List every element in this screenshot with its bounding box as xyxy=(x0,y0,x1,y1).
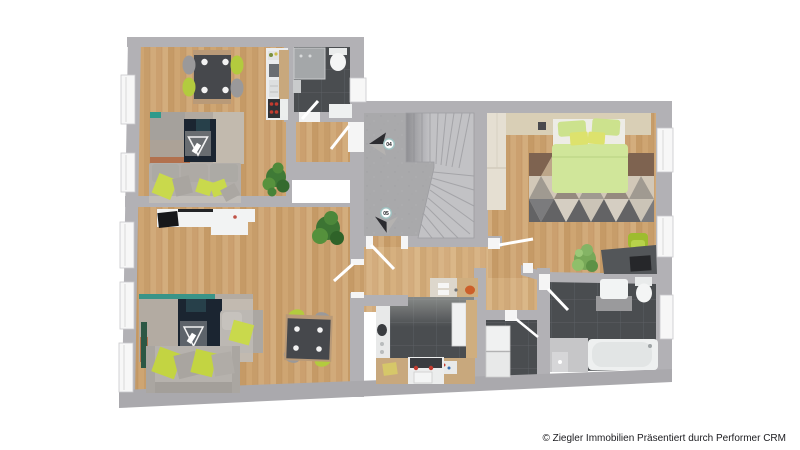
svg-text:05: 05 xyxy=(383,211,389,217)
svg-text:04: 04 xyxy=(386,142,392,148)
svg-text:© Ziegler Immobilien Präsentie: © Ziegler Immobilien Präsentiert durch P… xyxy=(542,433,786,444)
